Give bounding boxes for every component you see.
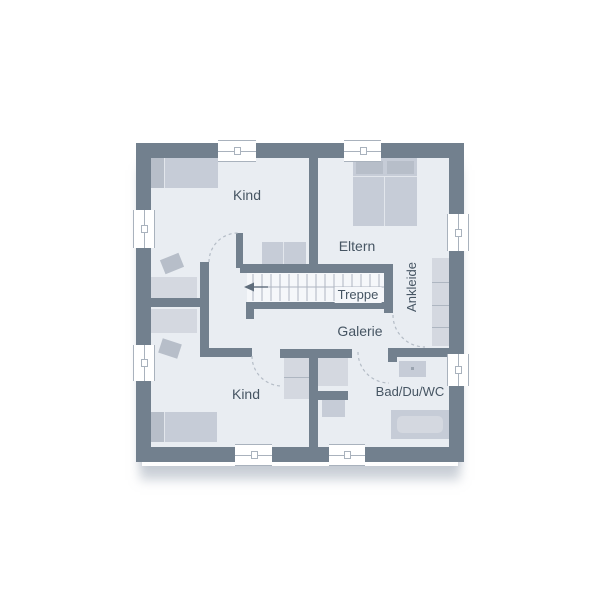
bed-divider [353,176,417,177]
toilet [322,400,345,417]
double-bed [353,158,417,226]
bed-pillow [356,161,383,174]
room-label-kind-top: Kind [233,187,261,203]
window-left-2 [133,345,155,381]
room-label-eltern: Eltern [339,238,376,254]
window-top-1 [218,140,256,162]
bed-pillow [151,158,165,188]
window-top-2 [344,140,381,162]
wardrobe [284,357,309,399]
window-right-1 [447,214,469,251]
wardrobe-divider [284,377,309,378]
desk [151,309,197,333]
outer-wall-right [449,143,464,462]
bathtub-basin [397,416,443,433]
wall-bad-top-jamb [388,348,397,362]
bed-pillow [387,161,414,174]
dresser-divider [283,242,284,264]
room-label-ankleide: Ankleide [404,262,420,312]
window-bottom-1 [235,444,272,466]
wall-kids-divider [146,298,209,307]
closet-unit [432,258,449,346]
wall-corridor [200,262,209,357]
outer-wall-top [136,143,464,158]
outer-wall-bottom [136,447,464,462]
wall-kind-bad [309,355,318,447]
bed [151,412,217,442]
shower [318,358,348,386]
room-label-treppe: Treppe [335,287,382,303]
stair-stringer [246,302,387,309]
bed-pillow [151,412,165,442]
closet-shelf [432,282,449,283]
wall-hall-bottom-left [200,348,252,357]
wall-kind-eltern [309,155,318,268]
desk [151,277,197,298]
wall-stairwell-top [240,264,393,273]
sink-drain [411,367,414,370]
room-label-galerie: Galerie [337,323,382,339]
window-bottom-2 [329,444,365,466]
room-label-bad: Bad/Du/WC [376,384,445,400]
window-right-2 [447,354,469,386]
closet-shelf [432,305,449,306]
bed-divider [384,176,385,226]
room-label-kind-bottom: Kind [232,386,260,402]
window-left-1 [133,210,155,248]
dresser [262,242,306,264]
bed [151,158,218,188]
closet-shelf [432,327,449,328]
stair-stringer-stub [246,302,254,319]
bathtub [391,410,450,439]
sink [399,361,426,377]
door-leaf [236,233,243,268]
floorplan: Kind Eltern Treppe Galerie Ankleide Bad/… [0,0,600,600]
wall-bad-stub [318,391,348,400]
